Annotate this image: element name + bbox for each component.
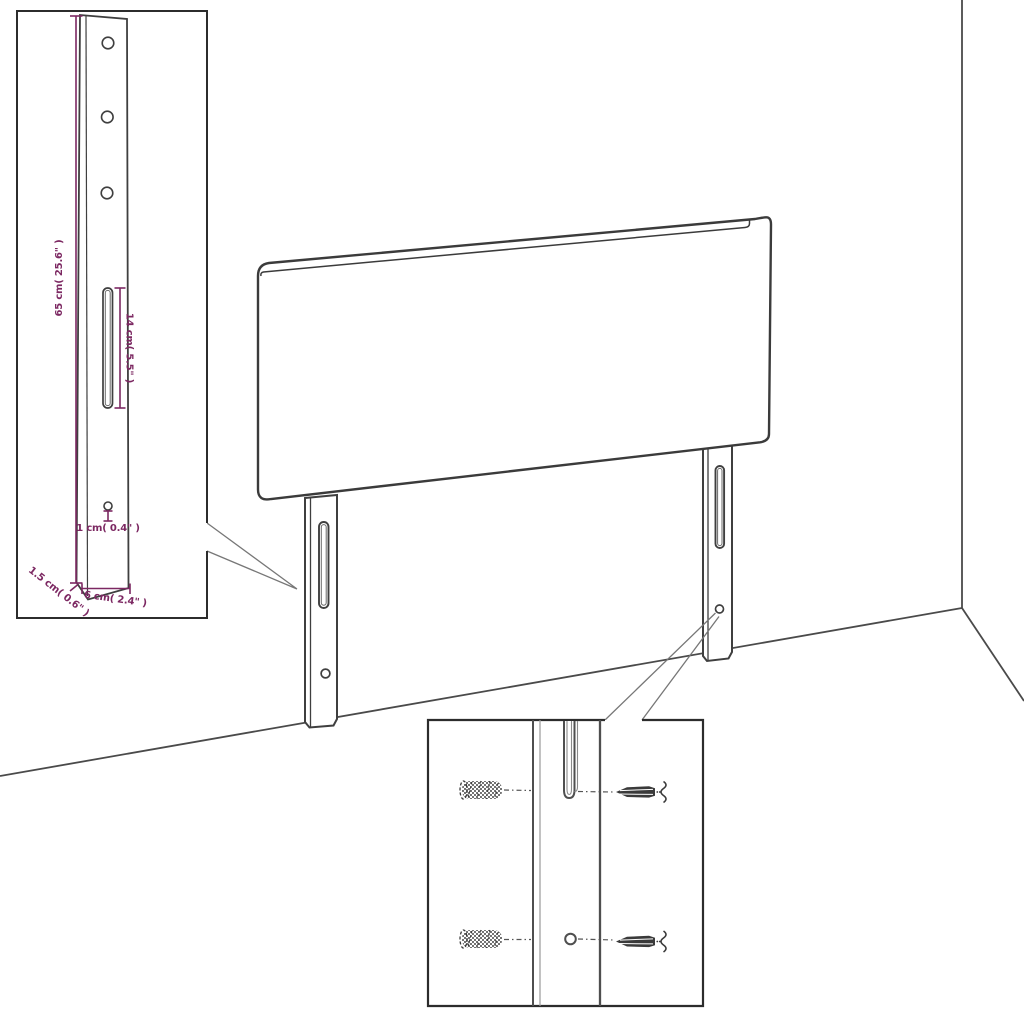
diagram-canvas: 65 cm( 25.6" ) 14 cm( 5.5" ) 1 cm( 0.4" …: [0, 0, 1024, 1024]
dim-label-1cm: 1 cm( 0.4" ): [76, 523, 139, 534]
screw-detail-inset: [428, 720, 703, 1006]
inset-hole: [565, 934, 576, 945]
bracket-hole-3: [101, 187, 113, 199]
bracket-slot: [103, 288, 113, 408]
inset-slot: [564, 721, 575, 798]
headboard: [258, 217, 771, 499]
right-leg-hole: [716, 605, 724, 613]
left-leg-slot: [319, 522, 329, 608]
wall-plug-bottom: [460, 930, 502, 948]
bracket-inset-callout: [207, 523, 297, 589]
right-leg-slot: [716, 466, 725, 548]
bracket-hole-1: [102, 37, 114, 49]
dim-label-14cm: 14 cm( 5.5" ): [124, 313, 135, 383]
bracket-small-hole: [104, 502, 112, 510]
bracket-dimension-inset: 65 cm( 25.6" ) 14 cm( 5.5" ) 1 cm( 0.4" …: [17, 11, 207, 619]
bracket-hole-2: [102, 111, 114, 123]
floor-line-right: [962, 608, 1024, 701]
dim-label-65cm: 65 cm( 25.6" ): [54, 240, 65, 317]
left-leg-hole: [321, 669, 330, 678]
left-leg: [305, 495, 337, 728]
headboard-dimension-diagram: 65 cm( 25.6" ) 14 cm( 5.5" ) 1 cm( 0.4" …: [0, 0, 1024, 1024]
headboard-front-panel: [258, 217, 771, 499]
wall-plug-top: [460, 781, 502, 799]
right-leg: [703, 441, 732, 661]
callout-lines: [207, 523, 719, 720]
